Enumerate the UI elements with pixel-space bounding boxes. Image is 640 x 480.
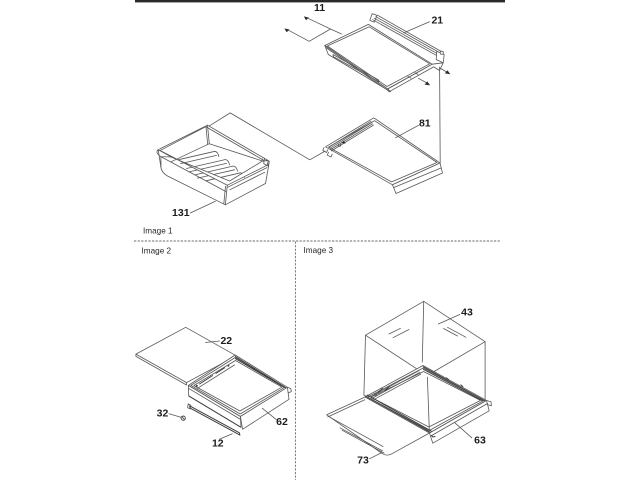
svg-text:43: 43 xyxy=(461,307,473,319)
svg-text:22: 22 xyxy=(220,335,232,347)
svg-text:11: 11 xyxy=(314,2,325,14)
svg-text:Image 1: Image 1 xyxy=(143,227,173,236)
svg-text:131: 131 xyxy=(172,207,190,219)
svg-text:Image 3: Image 3 xyxy=(304,246,334,255)
svg-text:81: 81 xyxy=(419,118,431,130)
svg-text:62: 62 xyxy=(276,416,288,428)
svg-text:63: 63 xyxy=(474,434,486,446)
svg-text:32: 32 xyxy=(157,408,169,420)
svg-text:12: 12 xyxy=(212,437,224,449)
svg-text:73: 73 xyxy=(357,455,369,467)
svg-text:21: 21 xyxy=(431,15,443,27)
svg-text:Image 2: Image 2 xyxy=(142,247,172,256)
